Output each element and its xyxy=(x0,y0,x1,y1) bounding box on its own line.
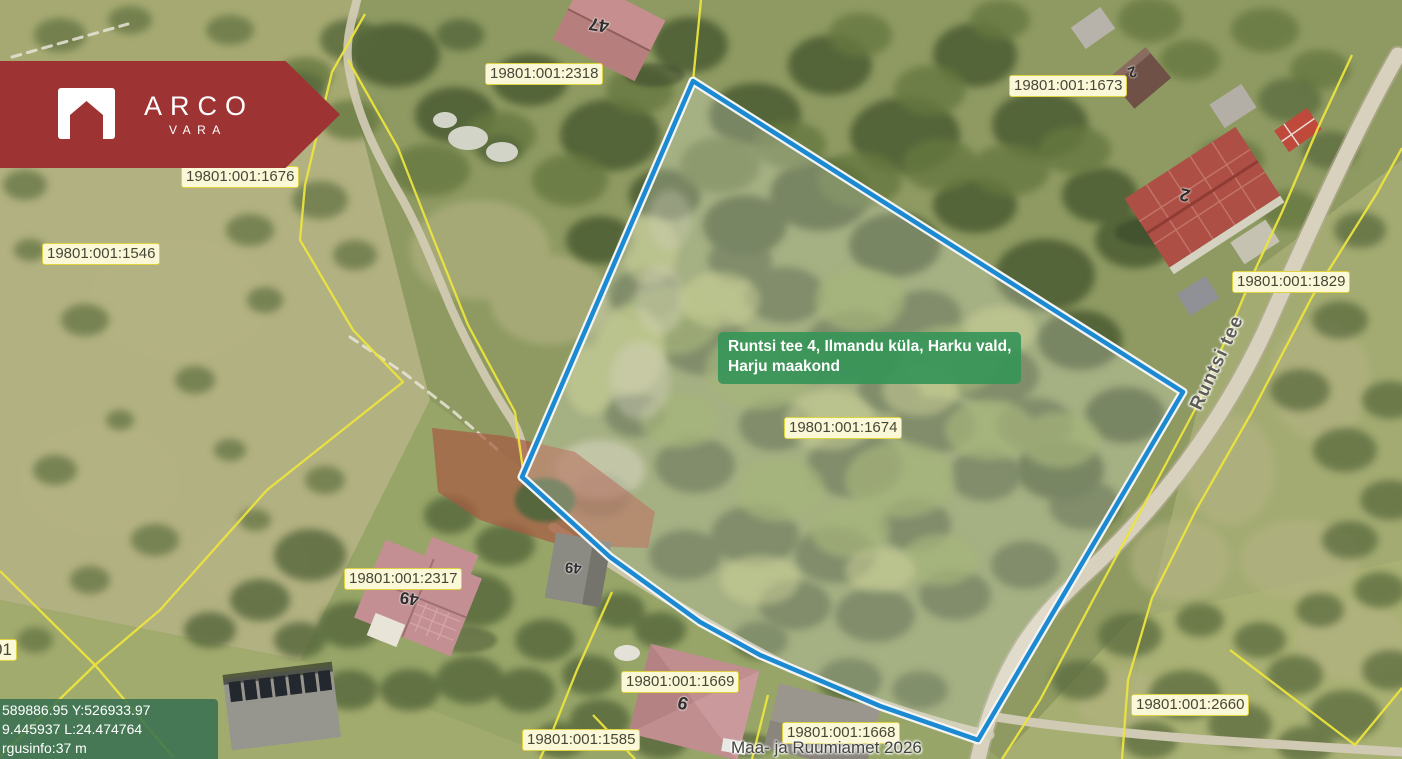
parcel-label-1585: 19801:001:1585 xyxy=(522,729,640,751)
parcel-label-1669: 19801:001:1669 xyxy=(621,671,739,693)
map-attribution: Maa- ja Ruumiamet 2026 xyxy=(731,738,922,758)
parcel-label-1674: 19801:001:1674 xyxy=(784,417,902,439)
map-viewport[interactable]: 19801:001:2318 19801:001:1676 19801:001:… xyxy=(0,0,1402,759)
coordinate-xy: 589886.95 Y:526933.97 xyxy=(2,701,212,720)
coordinate-elevation: rgusinfo:37 m xyxy=(2,739,212,758)
arco-vara-banner: ARCO VARA xyxy=(0,61,340,168)
arco-logo-icon xyxy=(58,88,116,140)
tooltip-address-line1: Runtsi tee 4, Ilmandu küla, Harku vald, xyxy=(728,337,1011,357)
tooltip-address-line2: Harju maakond xyxy=(728,357,1011,377)
coordinate-overlay: 589886.95 Y:526933.97 9.445937 L:24.4747… xyxy=(0,699,218,759)
parcel-label-2660: 19801:001:2660 xyxy=(1131,694,1249,716)
parcel-label-2317: 19801:001:2317 xyxy=(344,568,462,590)
parcel-label-1673: 19801:001:1673 xyxy=(1009,75,1127,97)
logo-primary-text: ARCO xyxy=(144,91,254,122)
parcel-label-1546: 19801:001:1546 xyxy=(42,243,160,265)
house-number-49-garage: 49 xyxy=(564,558,582,576)
parcel-label-2318: 19801:001:2318 xyxy=(485,63,603,85)
parcel-label-1676: 19801:001:1676 xyxy=(181,166,299,188)
house-number-49-house: 49 xyxy=(399,587,421,609)
logo-secondary-text: VARA xyxy=(169,123,227,137)
house-number-47: 47 xyxy=(587,13,610,37)
parking-area xyxy=(223,662,341,751)
parcel-label-1829: 19801:001:1829 xyxy=(1232,271,1350,293)
selected-parcel-tooltip: Runtsi tee 4, Ilmandu küla, Harku vald, … xyxy=(718,332,1021,384)
coordinate-bl: 9.445937 L:24.474764 xyxy=(2,720,212,739)
parcel-label-partial: 01 xyxy=(0,639,17,661)
